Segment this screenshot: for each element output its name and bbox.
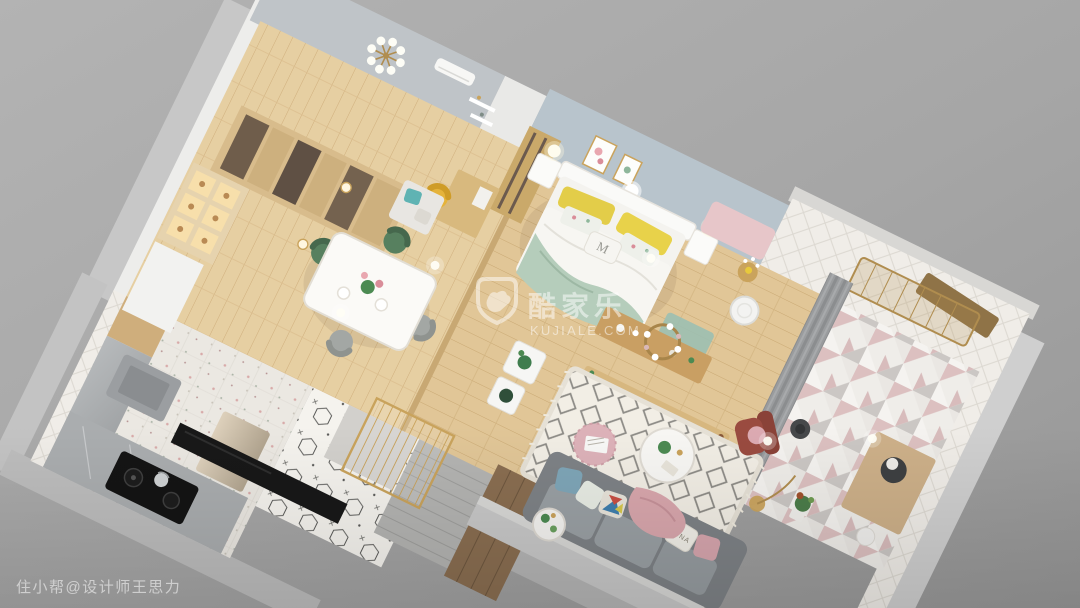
screenshot-stage: M [0, 0, 1080, 608]
apartment-render: M [0, 0, 1080, 608]
watermark-domain-text: KUJIALE.COM [530, 323, 641, 338]
watermark-brand-text: 酷家乐 [528, 290, 627, 322]
designer-credit-text: 住小帮@设计师王思力 [16, 579, 181, 596]
